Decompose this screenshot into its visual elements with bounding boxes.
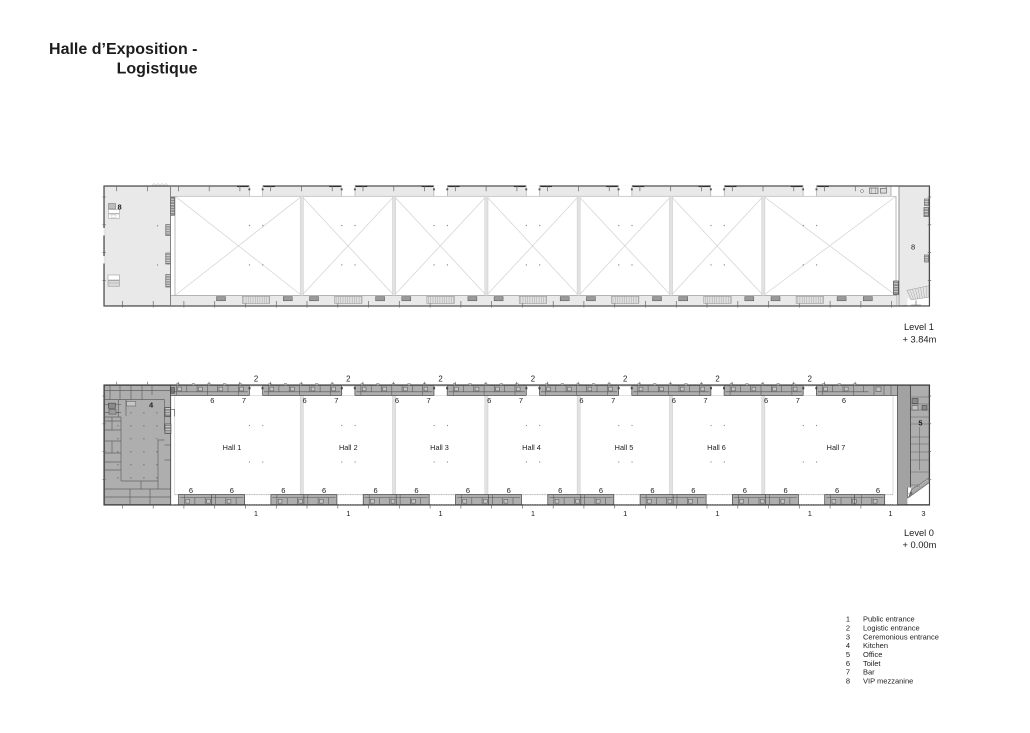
svg-text:1: 1 bbox=[346, 509, 350, 518]
svg-text:1: 1 bbox=[254, 509, 258, 518]
svg-text:7: 7 bbox=[703, 396, 707, 405]
svg-text:Halle d’Exposition -: Halle d’Exposition - bbox=[49, 41, 197, 58]
svg-text:Kitchen: Kitchen bbox=[863, 641, 888, 650]
svg-text:6: 6 bbox=[876, 486, 880, 495]
svg-text:Hall 2: Hall 2 bbox=[339, 443, 358, 452]
svg-text:6: 6 bbox=[414, 486, 418, 495]
svg-text:Hall 6: Hall 6 bbox=[707, 443, 726, 452]
svg-text:6: 6 bbox=[466, 486, 470, 495]
svg-text:6: 6 bbox=[487, 396, 491, 405]
svg-text:2: 2 bbox=[531, 374, 535, 383]
svg-text:1: 1 bbox=[808, 509, 812, 518]
svg-text:VIP mezzanine: VIP mezzanine bbox=[863, 677, 913, 686]
svg-text:2: 2 bbox=[623, 374, 627, 383]
svg-text:6: 6 bbox=[558, 486, 562, 495]
svg-text:6: 6 bbox=[835, 486, 839, 495]
svg-text:7: 7 bbox=[519, 396, 523, 405]
svg-text:Hall 1: Hall 1 bbox=[223, 443, 242, 452]
svg-text:6: 6 bbox=[599, 486, 603, 495]
svg-text:8: 8 bbox=[846, 677, 850, 686]
svg-text:2: 2 bbox=[346, 374, 350, 383]
svg-text:Ceremonious entrance: Ceremonious entrance bbox=[863, 632, 939, 641]
svg-text:6: 6 bbox=[743, 486, 747, 495]
svg-text:6: 6 bbox=[374, 486, 378, 495]
svg-text:Public entrance: Public entrance bbox=[863, 615, 915, 624]
svg-text:6: 6 bbox=[691, 486, 695, 495]
svg-text:6: 6 bbox=[281, 486, 285, 495]
svg-text:6: 6 bbox=[784, 486, 788, 495]
svg-text:6: 6 bbox=[672, 396, 676, 405]
svg-text:Logistic entrance: Logistic entrance bbox=[863, 624, 920, 633]
svg-text:6: 6 bbox=[322, 486, 326, 495]
svg-text:1: 1 bbox=[439, 509, 443, 518]
svg-text:Bar: Bar bbox=[863, 668, 875, 677]
svg-text:6: 6 bbox=[210, 396, 214, 405]
svg-text:7: 7 bbox=[846, 668, 850, 677]
svg-text:2: 2 bbox=[715, 374, 719, 383]
svg-text:6: 6 bbox=[842, 396, 846, 405]
svg-text:1: 1 bbox=[715, 509, 719, 518]
svg-text:3: 3 bbox=[921, 509, 925, 518]
svg-text:5: 5 bbox=[846, 650, 850, 659]
svg-text:Hall 3: Hall 3 bbox=[430, 443, 449, 452]
svg-text:+ 0.00m: + 0.00m bbox=[903, 540, 937, 550]
svg-text:1: 1 bbox=[531, 509, 535, 518]
svg-text:Logistique: Logistique bbox=[117, 61, 198, 78]
svg-text:4: 4 bbox=[846, 641, 850, 650]
svg-text:2: 2 bbox=[808, 374, 812, 383]
svg-text:6: 6 bbox=[303, 396, 307, 405]
svg-text:6: 6 bbox=[395, 396, 399, 405]
svg-text:Office: Office bbox=[863, 650, 882, 659]
svg-text:6: 6 bbox=[650, 486, 654, 495]
svg-text:6: 6 bbox=[230, 486, 234, 495]
svg-text:1: 1 bbox=[846, 615, 850, 624]
svg-text:Level 1: Level 1 bbox=[904, 322, 934, 332]
svg-text:6: 6 bbox=[764, 396, 768, 405]
svg-text:3: 3 bbox=[846, 632, 850, 641]
svg-text:1: 1 bbox=[623, 509, 627, 518]
svg-text:8: 8 bbox=[911, 243, 915, 252]
svg-text:6: 6 bbox=[507, 486, 511, 495]
svg-text:Hall 4: Hall 4 bbox=[522, 443, 541, 452]
svg-text:1: 1 bbox=[888, 509, 892, 518]
svg-text:7: 7 bbox=[796, 396, 800, 405]
svg-text:2: 2 bbox=[846, 624, 850, 633]
svg-text:6: 6 bbox=[579, 396, 583, 405]
svg-text:Hall 5: Hall 5 bbox=[615, 443, 634, 452]
svg-text:7: 7 bbox=[334, 396, 338, 405]
svg-text:Hall 7: Hall 7 bbox=[827, 443, 846, 452]
svg-text:7: 7 bbox=[242, 396, 246, 405]
svg-text:+ 3.84m: + 3.84m bbox=[903, 334, 937, 344]
svg-text:7: 7 bbox=[611, 396, 615, 405]
svg-text:7: 7 bbox=[427, 396, 431, 405]
svg-text:Level 0: Level 0 bbox=[904, 528, 934, 538]
svg-text:6: 6 bbox=[189, 486, 193, 495]
svg-text:Toilet: Toilet bbox=[863, 659, 881, 668]
svg-text:8: 8 bbox=[118, 202, 122, 211]
svg-text:2: 2 bbox=[438, 374, 442, 383]
svg-text:6: 6 bbox=[846, 659, 850, 668]
svg-text:5: 5 bbox=[918, 419, 922, 428]
svg-text:2: 2 bbox=[254, 374, 258, 383]
